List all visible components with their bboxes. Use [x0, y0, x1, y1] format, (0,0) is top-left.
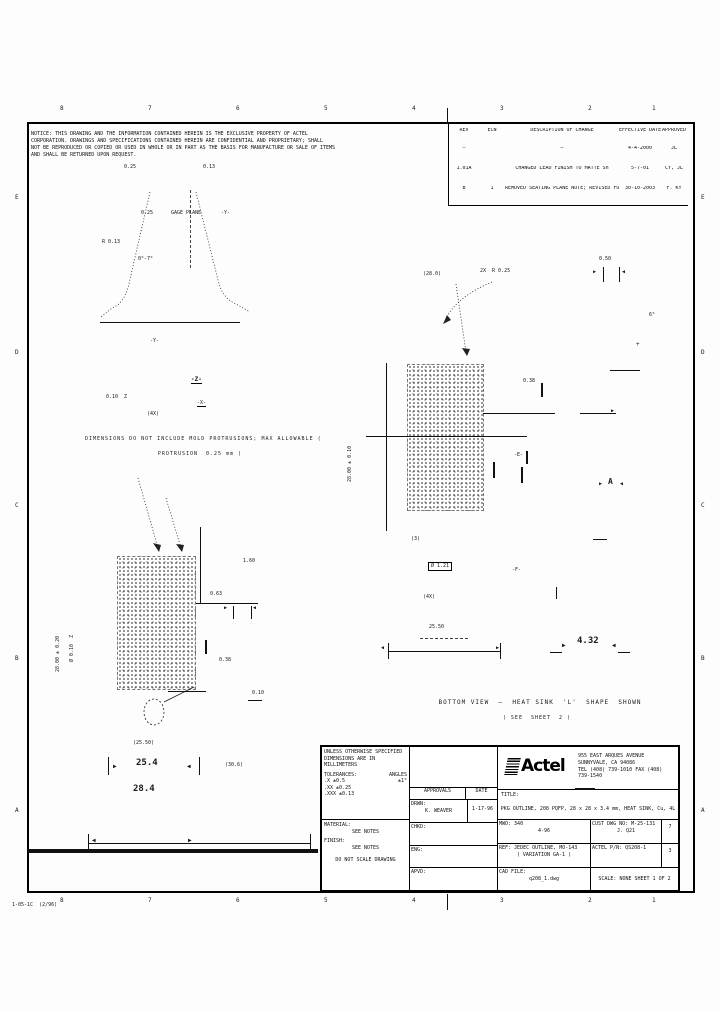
dim-label: (4X) [423, 595, 435, 600]
tolerance-row: .XXX ±0.13 [324, 791, 407, 798]
drawing-line [420, 638, 468, 639]
dim-label: Ø 0.10 Z [70, 635, 75, 662]
dim-label: 0.25 [124, 165, 136, 170]
drawing-line [168, 691, 206, 692]
number-row-1: MWO: 340 4-96 CUST DWG NO: M-25-131 J. Q… [498, 820, 678, 844]
dim-label: 0.13 [203, 165, 215, 170]
dim-label: GAGE PLANE [171, 211, 201, 216]
approvals-header-label: APPROVALS [410, 788, 466, 799]
dim-label: (30.6) [225, 763, 243, 768]
company-address: 955 EAST ARQUES AVENUE SUNNYVALE, CA 940… [578, 753, 676, 780]
zone-label: D [701, 350, 705, 356]
drawing-line [100, 322, 240, 323]
dim-label: 2X R 0.25 [480, 269, 510, 274]
drawn-name: K. WEAVER [411, 808, 466, 815]
dim-label: 0°-7° [138, 257, 153, 262]
tolerance-row: .X ±0.5 [324, 778, 345, 785]
dim-label: ▶ [224, 606, 227, 611]
drawing-sheet: NOTICE: THIS DRAWING AND THE INFORMATION… [0, 0, 720, 1012]
view-caption: ( SEE SHEET 2 ) [462, 716, 612, 721]
number-row-2: REF: JEDEC OUTLINE, MO-143 ( VARIATION G… [498, 844, 678, 868]
drawing-line [190, 190, 191, 268]
scale-sheet: SCALE: NONE SHEET 1 OF 2 [591, 868, 678, 890]
dim-label: -Z- [191, 377, 202, 384]
dim-label: ▶ [562, 643, 566, 649]
drawing-line [200, 527, 201, 603]
dim-label: 0.38 [219, 658, 231, 663]
dim-label: ◀ [92, 838, 96, 844]
leader-line [166, 498, 181, 548]
eng-label: ENG: [411, 847, 423, 853]
dim-label: ◀ [187, 764, 191, 770]
drawing-line [233, 606, 234, 619]
dim-label: 28.00 ± 0.10 [348, 446, 353, 482]
arrowhead [443, 315, 451, 324]
dim-label: ▶ [496, 646, 499, 651]
zone-label: A [15, 808, 19, 814]
view-caption: BOTTOM VIEW — HEAT SINK 'L' SHAPE SHOWN [435, 700, 645, 706]
zone-label: 8 [60, 898, 64, 904]
drawing-line [483, 413, 555, 414]
arrowhead [462, 348, 470, 356]
drawing-line [493, 462, 495, 478]
zone-label: C [701, 503, 705, 509]
dim-label: ▶ [188, 838, 192, 844]
cust-dwg-no: CUST DWG NO: M-25-131 [592, 821, 660, 828]
actel-pn: ACTEL P/N: QS208-1 [591, 844, 661, 867]
checked-label: CHKD: [411, 824, 426, 830]
pin1-id-circle [144, 699, 164, 725]
zone-label: B [701, 656, 705, 662]
dim-label: ◀ [253, 606, 256, 611]
actel-logo-bars-icon [504, 758, 521, 775]
drawing-line [556, 587, 557, 599]
dim-label: 4.32 [577, 637, 599, 646]
view-caption: PROTRUSION 0.25 mm ) [120, 452, 280, 457]
company-box: Actel 955 EAST ARQUES AVENUE SUNNYVALE, … [498, 747, 678, 790]
drawing-line [196, 603, 258, 604]
dim-label: ◀ [622, 270, 625, 275]
zone-label: 4 [412, 106, 416, 112]
cad-file-label: CAD FILE: [499, 869, 526, 875]
drawing-title: PKG OUTLINE, 208 PQFP, 28 x 28 x 3.4 mm,… [500, 806, 676, 813]
dim-label: -Y- [221, 211, 230, 216]
cad-file-value: q208_1.dwg [499, 876, 589, 883]
drawing-line [603, 267, 604, 282]
drawing-line [619, 267, 620, 282]
leader-line [164, 687, 194, 702]
dim-label: 0.63 [210, 592, 222, 597]
tolerance-column: UNLESS OTHERWISE SPECIFIED DIMENSIONS AR… [322, 747, 410, 890]
drawing-line [366, 436, 527, 437]
material-value: SEE NOTES [324, 829, 407, 836]
zone-label: E [15, 195, 19, 201]
title-label: TITLE: [501, 792, 519, 799]
address-line: 955 EAST ARQUES AVENUE [578, 753, 676, 760]
zone-label: 7 [148, 898, 152, 904]
drawing-line [610, 370, 640, 371]
drawing-line [88, 843, 310, 844]
zone-label: 2 [588, 898, 592, 904]
zone-label: 6 [236, 106, 240, 112]
zone-label: 6 [236, 898, 240, 904]
zone-label: 8 [60, 106, 64, 112]
approvals-column: APPROVALS DATE DRWN: K. WEAVER 1-17-96 C… [410, 747, 498, 890]
mwo-label: MWO: 340 [499, 821, 523, 827]
drawing-line [388, 651, 500, 652]
drawing-line [447, 108, 448, 124]
drawing-line [500, 643, 501, 659]
dim-label: ◀ [381, 646, 384, 651]
dim-label: ▶ [593, 270, 596, 275]
zone-label: 1 [652, 106, 656, 112]
leader-line [138, 478, 158, 548]
approvals-header: APPROVALS DATE [410, 788, 497, 800]
drawing-line [205, 640, 207, 654]
zone-label: 1 [652, 898, 656, 904]
dim-label: -Y- [150, 339, 159, 344]
drawing-line [575, 788, 595, 790]
dim-label: R 0.13 [102, 240, 120, 245]
drawing-line [28, 849, 318, 853]
dim-label: 1.60 [243, 559, 255, 564]
approval-row-drawn: DRWN: K. WEAVER 1-17-96 [410, 800, 497, 823]
dim-label: (28.0) [423, 272, 441, 277]
zone-label: D [15, 350, 19, 356]
title-block: UNLESS OTHERWISE SPECIFIED DIMENSIONS AR… [320, 745, 680, 892]
dim-label: ◀ [620, 482, 623, 487]
drawing-line [108, 757, 109, 775]
rev-value-1: 7 [661, 820, 678, 843]
arrowhead [176, 544, 184, 552]
dim-label: 28.4 [133, 785, 155, 794]
projection-symbol-box [410, 747, 497, 788]
dim-label: ◀ [612, 643, 616, 649]
dim-label: 25.4 [136, 759, 158, 768]
mwo-value: 4-96 [499, 828, 589, 835]
zone-label: 5 [324, 106, 328, 112]
tolerance-line: DIMENSIONS ARE IN MILLIMETERS [324, 756, 407, 769]
zone-label: C [15, 503, 19, 509]
dim-label: 0.25 [141, 211, 153, 216]
dim-label: (25.50) [133, 741, 154, 746]
company-column: Actel 955 EAST ARQUES AVENUE SUNNYVALE, … [498, 747, 678, 890]
no-scale-note: DO NOT SCALE DRAWING [324, 857, 407, 864]
rev-value-2: 3 [661, 844, 678, 867]
zone-label: A [701, 808, 705, 814]
zone-label: 3 [500, 106, 504, 112]
actel-logo: Actel [506, 755, 565, 777]
dim-label: -X- [197, 401, 206, 407]
tolerance-line: UNLESS OTHERWISE SPECIFIED [324, 749, 407, 756]
drawing-line [251, 606, 252, 619]
drawing-line [541, 383, 543, 397]
zone-label: 5 [324, 898, 328, 904]
dim-label: (4X) [147, 412, 159, 417]
dim-label: 0.38 [523, 379, 535, 384]
drawn-date: 1-17-96 [468, 800, 497, 822]
apvd-label: APVD: [411, 869, 426, 875]
dim-label: ▶ [611, 409, 614, 414]
drawing-line [526, 451, 528, 464]
drawing-line [593, 539, 607, 540]
leader-line [456, 284, 466, 352]
approval-row-eng: ENG: [410, 846, 497, 868]
leader-line [446, 282, 492, 318]
dim-label: 0.50 [599, 257, 611, 262]
drawing-line [618, 652, 630, 653]
dim-label: 28.00 ± 0.20 [56, 636, 61, 672]
dim-label: -E- [514, 453, 523, 458]
jedec-ref: REF: JEDEC OUTLINE, MO-143 [499, 845, 589, 852]
drawing-line [386, 363, 387, 531]
dim-label: ▶ [599, 482, 602, 487]
drawing-line [550, 652, 562, 653]
title-box: TITLE: PKG OUTLINE, 208 PQFP, 28 x 28 x … [498, 790, 678, 820]
doc-number: 1-05-1C (2/96) [12, 903, 57, 908]
angle-tolerance: ±1° [398, 778, 407, 785]
jedec-variation: ( VARIATION GA-1 ) [499, 852, 589, 859]
dim-label: -F- [512, 568, 521, 573]
cust-dwg-name: J. Q21 [592, 828, 660, 835]
dim-label: A [608, 478, 613, 486]
dim-label: + [636, 342, 640, 348]
drawing-line [199, 757, 200, 775]
tolerance-box: UNLESS OTHERWISE SPECIFIED DIMENSIONS AR… [322, 747, 409, 820]
material-box: MATERIAL: SEE NOTES FINISH: SEE NOTES DO… [322, 820, 409, 890]
zone-label: E [701, 195, 705, 201]
dim-label: 0.10 Z [106, 395, 127, 400]
actel-logo-text: Actel [521, 755, 565, 777]
drawing-line [447, 894, 448, 910]
dim-label: (3) [411, 537, 420, 542]
zone-label: 7 [148, 106, 152, 112]
number-row-3: CAD FILE: q208_1.dwg SCALE: NONE SHEET 1… [498, 868, 678, 890]
address-line: TEL (408) 739-1010 FAX (408) 739-1540 [578, 767, 676, 781]
drawing-line [521, 467, 523, 483]
zone-label: 2 [588, 106, 592, 112]
approval-row-apvd: APVD: [410, 868, 497, 890]
finish-value: SEE NOTES [324, 845, 407, 852]
view-caption: DIMENSIONS DO NOT INCLUDE MOLD PROTRUSIO… [85, 437, 315, 442]
drawing-line [388, 643, 389, 659]
dim-label: ▶ [113, 764, 117, 770]
zone-label: B [15, 656, 19, 662]
approval-row-checked: CHKD: [410, 823, 497, 846]
date-header-label: DATE [466, 788, 497, 799]
dim-label: 6° [649, 313, 655, 318]
arrowhead [153, 543, 161, 552]
zone-label: 4 [412, 898, 416, 904]
dim-label: 0.10 [252, 691, 264, 696]
dim-label: 25.50 [429, 625, 444, 630]
zone-label: 3 [500, 898, 504, 904]
drawing-line [248, 700, 262, 701]
address-line: SUNNYVALE, CA 94086 [578, 760, 676, 767]
drawn-label: DRWN: [411, 801, 426, 807]
dim-label: Ø 1.21 [428, 562, 452, 571]
